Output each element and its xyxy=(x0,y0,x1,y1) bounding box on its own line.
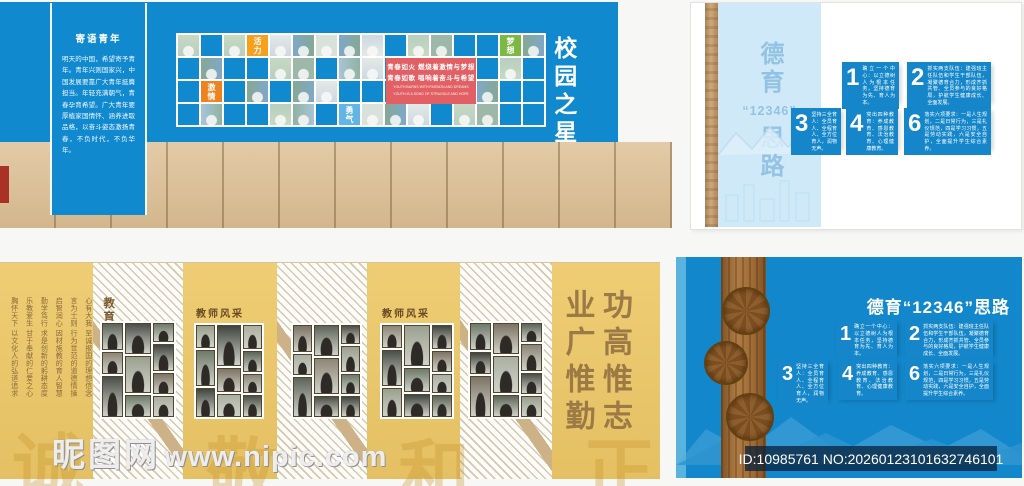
carved-medallion-icon xyxy=(726,393,774,441)
card-number: 4 xyxy=(838,360,854,400)
teacher-photo xyxy=(196,325,215,348)
teacher-photo xyxy=(153,323,174,342)
photo-tile xyxy=(224,35,245,56)
card-text: 落实六项要求：一是人生规划，二是日常行为，三是礼仪规范，四是学习习惯，五是劳动实… xyxy=(922,108,991,155)
teacher-photo xyxy=(341,325,360,344)
photo-tile xyxy=(362,104,383,125)
photo-tile xyxy=(362,58,383,79)
teacher-photo xyxy=(102,352,123,374)
card-number: 1 xyxy=(842,62,860,109)
blank-tile xyxy=(316,104,337,125)
photo-tile xyxy=(293,81,314,102)
photo-tile xyxy=(270,104,291,125)
teacher-photo xyxy=(470,352,491,374)
photo-tile xyxy=(454,104,475,125)
moral-card-3: 3坚持三全育人：全员育人、全程育人、全方位育人，润物无声。 xyxy=(791,108,841,148)
teacher-photo xyxy=(243,374,262,393)
card-body: 2抓实两支队伍：建强班主任队伍和学生干部队伍，凝聚德育合力，形成齐抓共管、全员参… xyxy=(905,320,993,360)
teacher-photo xyxy=(432,395,452,417)
collage-column xyxy=(493,323,519,417)
teacher-section-title: 教师风采 xyxy=(382,305,430,320)
accent-label: 活力 xyxy=(252,37,263,55)
card-body: 3坚持三全育人：全员育人、全程育人、全方位育人，润物无声。 xyxy=(791,108,841,155)
teacher-photo xyxy=(293,325,312,352)
card-number: 6 xyxy=(904,108,922,155)
teacher-photo xyxy=(293,354,312,375)
teacher-photo xyxy=(125,356,151,393)
accent-tile: 勇气 xyxy=(339,104,360,125)
teacher-collage xyxy=(194,323,264,419)
blank-tile xyxy=(500,104,521,125)
collage-column xyxy=(125,323,151,417)
teacher-photo xyxy=(125,323,151,354)
slogan-line-cn: 青春如火 燃烧着激情与梦想 xyxy=(387,63,475,73)
card-body: 4突出四种教育：养成教育、感恩教育、法治教育、心理健康教育。 xyxy=(838,360,897,400)
spirit-line: 勤学笃行 求是创新的躬耕态度 xyxy=(37,297,50,462)
teacher-photo xyxy=(217,325,241,366)
teacher-photo xyxy=(314,325,338,356)
card-number: 6 xyxy=(905,360,921,400)
photo-tile xyxy=(293,104,314,125)
moral-card-2: 2抓实两支队伍：建强班主任队伍和学生干部队伍，凝聚德育合力，形成齐抓共管、全员参… xyxy=(905,320,993,354)
teacher-photo xyxy=(432,374,452,393)
blank-tile xyxy=(224,81,245,102)
collage-column xyxy=(243,325,262,417)
teacher-photo xyxy=(521,323,542,342)
accent-label: 激情 xyxy=(206,83,217,101)
design-preview-sheet: 寄语青年 明天的中国，希望寄予青年。青年兴则国家兴，中国发展要靠广大青年挺膺担当… xyxy=(0,0,1024,486)
blank-tile xyxy=(385,35,406,56)
teacher-photo xyxy=(153,344,174,371)
photo-tile xyxy=(316,81,337,102)
teacher-photo xyxy=(125,395,151,417)
spirit-line: 乐教爱生 甘于奉献的仁爱之心 xyxy=(22,297,35,462)
collage-column xyxy=(293,325,312,417)
teacher-photo xyxy=(404,325,429,366)
card-text: 突出四种教育：养成教育、感恩教育、法治教育、心理健康教育。 xyxy=(854,360,897,400)
teacher-photo xyxy=(102,323,123,350)
teacher-photo xyxy=(493,395,519,417)
collage-column xyxy=(432,325,452,417)
teacher-photo xyxy=(521,396,542,417)
teacher-photo xyxy=(404,394,429,417)
card-text: 抓实两支队伍：建强班主任队伍和学生干部队伍，凝聚德育合力，形成齐抓共管、全员参与… xyxy=(921,320,993,360)
slogan-line-en: YOUTH IS A SONG OF STRUGGLE AND HOPE xyxy=(393,93,468,97)
moral-card-6: 6落实六项要求：一是人生规划，二是日常行为，三是礼仪规范，四是学习习惯，五是劳动… xyxy=(905,360,993,398)
teacher-photo xyxy=(493,356,519,393)
accent-tile: 活力 xyxy=(247,35,268,56)
teacher-section-title: 教师风采 xyxy=(196,305,244,320)
carved-medallion-icon xyxy=(704,341,748,385)
image-id-bar: ID:10985761 NO:20260123101632746101 xyxy=(745,446,997,471)
blank-tile xyxy=(523,58,544,79)
blank-tile xyxy=(316,58,337,79)
photo-tile xyxy=(500,58,521,79)
teacher-collage xyxy=(100,321,176,419)
photo-tile xyxy=(362,35,383,56)
moral-card-6: 6落实六项要求：一是人生规划，二是日常行为，三是礼仪规范，四是学习习惯，五是劳动… xyxy=(904,108,991,148)
blank-tile xyxy=(224,58,245,79)
moral-title-top: 德育 xyxy=(752,41,787,97)
collage-column xyxy=(382,325,402,417)
card-text: 坚持三全育人：全员育人、全程育人、全方位育人，润物无声。 xyxy=(809,108,841,155)
card-number: 2 xyxy=(907,62,925,109)
photo-tile xyxy=(293,35,314,56)
card-body: 6落实六项要求：一是人生规划，二是日常行为，三是礼仪规范，四是学习习惯，五是劳动… xyxy=(905,360,993,400)
blank-tile xyxy=(523,81,544,102)
panel-campus-star: 寄语青年 明天的中国，希望寄予青年。青年兴则国家兴，中国发展要靠广大青年挺膺担当… xyxy=(0,2,672,228)
card-body: 1确立一个中心：以立德树人为根本任务，坚持德育为先、育人为本。 xyxy=(836,320,897,360)
blank-tile xyxy=(431,104,452,125)
wood-strip xyxy=(705,3,718,227)
collage-column xyxy=(314,325,338,417)
teacher-photo xyxy=(341,396,360,417)
card-number: 4 xyxy=(846,108,864,155)
photo-tile xyxy=(201,58,222,79)
teacher-photo xyxy=(217,394,241,417)
blank-tile xyxy=(201,35,222,56)
teacher-photo xyxy=(382,325,402,348)
blank-tile xyxy=(178,81,199,102)
moral-title-number: “12346” xyxy=(742,104,796,118)
slogan-line-en: YOUTH BURNS WITH PASSION AND DREAMS xyxy=(393,85,468,89)
teacher-photo xyxy=(153,373,174,394)
motto-vertical: 功高惟志 业广惟勤 xyxy=(558,289,633,437)
photo-tile xyxy=(316,35,337,56)
moral-card-1: 1确立一个中心：以立德树人为根本任务，坚持德育为先、育人为本。 xyxy=(836,320,897,354)
accent-tile: 激情 xyxy=(201,81,222,102)
collage-column xyxy=(341,325,360,417)
card-number: 2 xyxy=(905,320,921,360)
youth-message-column: 寄语青年 明天的中国，希望寄予青年。青年兴则国家兴，中国发展要靠广大青年挺膺担当… xyxy=(50,3,147,215)
accent-tile: 梦想 xyxy=(500,35,521,56)
card-body: 1确立一个中心：以立德树人为根本任务，坚持德育为先、育人为本。 xyxy=(842,62,899,109)
teacher-photo xyxy=(243,351,262,372)
carved-medallion-icon xyxy=(722,287,770,335)
photo-tile xyxy=(201,104,222,125)
card-text: 突出四种教育：养成教育、感恩教育、法治教育、心理健康教育。 xyxy=(864,108,898,155)
photo-tile xyxy=(339,58,360,79)
teacher-photo xyxy=(243,395,262,417)
card-text: 抓实两支队伍：建强班主任队伍和学生干部队伍，凝聚德育合力，形成齐抓共管、全员参与… xyxy=(925,62,991,109)
teacher-photo xyxy=(293,377,312,417)
site-watermark: 昵图网 www.nipic.com xyxy=(52,428,387,476)
panel-moral-blue: 德育“12346”思路 1确立一个中心：以立德树人为根本任务，坚持德育为先、育人… xyxy=(676,257,1022,478)
motto-left-column: 业广惟勤 xyxy=(561,289,594,437)
blank-tile xyxy=(178,58,199,79)
teacher-photo xyxy=(196,350,215,385)
teacher-photo xyxy=(153,396,174,417)
card-text: 确立一个中心：以立德树人为根本任务，坚持德育为先、育人为本。 xyxy=(852,320,897,360)
motto-right-column: 功高惟志 xyxy=(598,289,631,437)
message-title: 寄语青年 xyxy=(52,31,145,45)
blank-tile xyxy=(477,35,498,56)
moral-card-3: 3坚持三全育人：全员育人、全程育人、全方位育人，润物无声。 xyxy=(778,360,828,398)
moral-card-4: 4突出四种教育：养成教育、感恩教育、法治教育、心理健康教育。 xyxy=(838,360,897,398)
photo-tile xyxy=(431,35,452,56)
collage-column xyxy=(153,323,174,417)
card-body: 4突出四种教育：养成教育、感恩教育、法治教育、心理健康教育。 xyxy=(846,108,898,155)
blank-tile xyxy=(477,58,498,79)
collage-column xyxy=(102,323,123,417)
campus-star-title: 校园之星 xyxy=(549,36,578,148)
teacher-photo xyxy=(196,388,215,417)
card-body: 6落实六项要求：一是人生规划，二是日常行为，三是礼仪规范，四是学习习惯，五是劳动… xyxy=(904,108,991,155)
photo-tile xyxy=(385,104,406,125)
teacher-photo xyxy=(521,373,542,394)
blank-tile xyxy=(523,104,544,125)
photo-tile xyxy=(477,104,498,125)
teacher-photo xyxy=(382,388,402,417)
teacher-collage xyxy=(380,323,454,419)
photo-tile xyxy=(523,35,544,56)
blank-tile xyxy=(454,35,475,56)
slogan-line-cn: 青春如歌 唱响着奋斗与希望 xyxy=(387,74,475,84)
teacher-collage xyxy=(291,323,362,419)
blank-tile xyxy=(247,104,268,125)
blank-tile xyxy=(247,58,268,79)
photo-tile xyxy=(408,104,429,125)
accent-label: 梦想 xyxy=(505,37,516,55)
blank-tile xyxy=(500,81,521,102)
teacher-photo xyxy=(404,368,429,391)
photo-tile xyxy=(477,81,498,102)
teacher-photo xyxy=(341,374,360,395)
card-number: 1 xyxy=(836,320,852,360)
collage-column xyxy=(470,323,491,417)
teacher-photo xyxy=(470,376,491,417)
photo-tile xyxy=(247,81,268,102)
blank-tile xyxy=(339,81,360,102)
teacher-photo xyxy=(102,376,123,417)
blank-tile xyxy=(270,81,291,102)
teacher-photo xyxy=(521,344,542,371)
photo-tile xyxy=(339,35,360,56)
moral-card-4: 4突出四种教育：养成教育、感恩教育、法治教育、心理健康教育。 xyxy=(846,108,898,148)
teacher-photo xyxy=(314,396,338,417)
moral-card-2: 2抓实两支队伍：建强班主任队伍和学生干部队伍，凝聚德育合力，形成齐抓共管、全员参… xyxy=(907,62,991,101)
accent-label: 勇气 xyxy=(344,106,355,124)
youth-slogan-box: 青春如火 燃烧着激情与梦想 青春如歌 唱响着奋斗与希望 YOUTH BURNS … xyxy=(386,58,476,104)
collage-column xyxy=(217,325,241,417)
photo-tile xyxy=(408,35,429,56)
card-text: 落实六项要求：一是人生规划，二是日常行为，三是礼仪规范，四是学习习惯，五是劳动实… xyxy=(921,360,993,400)
collage-column xyxy=(404,325,429,417)
teacher-photo xyxy=(382,350,402,385)
photo-tile xyxy=(270,35,291,56)
blank-tile xyxy=(362,81,383,102)
card-body: 2抓实两支队伍：建强班主任队伍和学生干部队伍，凝聚德育合力，形成齐抓共管、全员参… xyxy=(907,62,991,109)
background-character: 和 xyxy=(398,415,470,486)
message-body: 明天的中国，希望寄予青年。青年兴则国家兴，中国发展要靠广大青年挺膺担当。年轻充满… xyxy=(62,54,135,156)
teacher-photo xyxy=(217,368,241,391)
photo-tile xyxy=(270,58,291,79)
watermark-url: www.nipic.com xyxy=(164,441,387,473)
moral-title-inline: 德育“12346”思路 xyxy=(867,293,1010,318)
teacher-collage xyxy=(468,321,544,419)
teacher-photo xyxy=(493,323,519,354)
blank-tile xyxy=(178,104,199,125)
teacher-photo xyxy=(432,351,452,372)
teacher-photo xyxy=(470,323,491,350)
photo-grid: 活力梦想激情勇气 xyxy=(176,33,546,127)
moral-card-1: 1确立一个中心：以立德树人为根本任务，坚持德育为先、育人为本。 xyxy=(842,62,899,101)
watermark-logo: 昵图网 xyxy=(52,436,160,473)
panel-moral-white: 德育 “12346” 思路 1确立一个中心：以立德树人为根本任务，坚持德育为先、… xyxy=(690,2,1022,230)
teacher-photo xyxy=(243,325,262,349)
card-number: 3 xyxy=(791,108,809,155)
teacher-photo xyxy=(341,346,360,372)
spirit-line: 胸怀天下 以文化人的弘道追求 xyxy=(8,297,21,462)
teacher-photo xyxy=(432,325,452,349)
photo-tile xyxy=(293,58,314,79)
teacher-photo xyxy=(314,358,338,394)
collage-column xyxy=(196,325,215,417)
blank-tile xyxy=(224,104,245,125)
red-accent-tab xyxy=(0,166,9,203)
photo-tile xyxy=(178,35,199,56)
collage-column xyxy=(521,323,542,417)
card-text: 确立一个中心：以立德树人为根本任务，坚持德育为先、育人为本。 xyxy=(860,62,899,109)
